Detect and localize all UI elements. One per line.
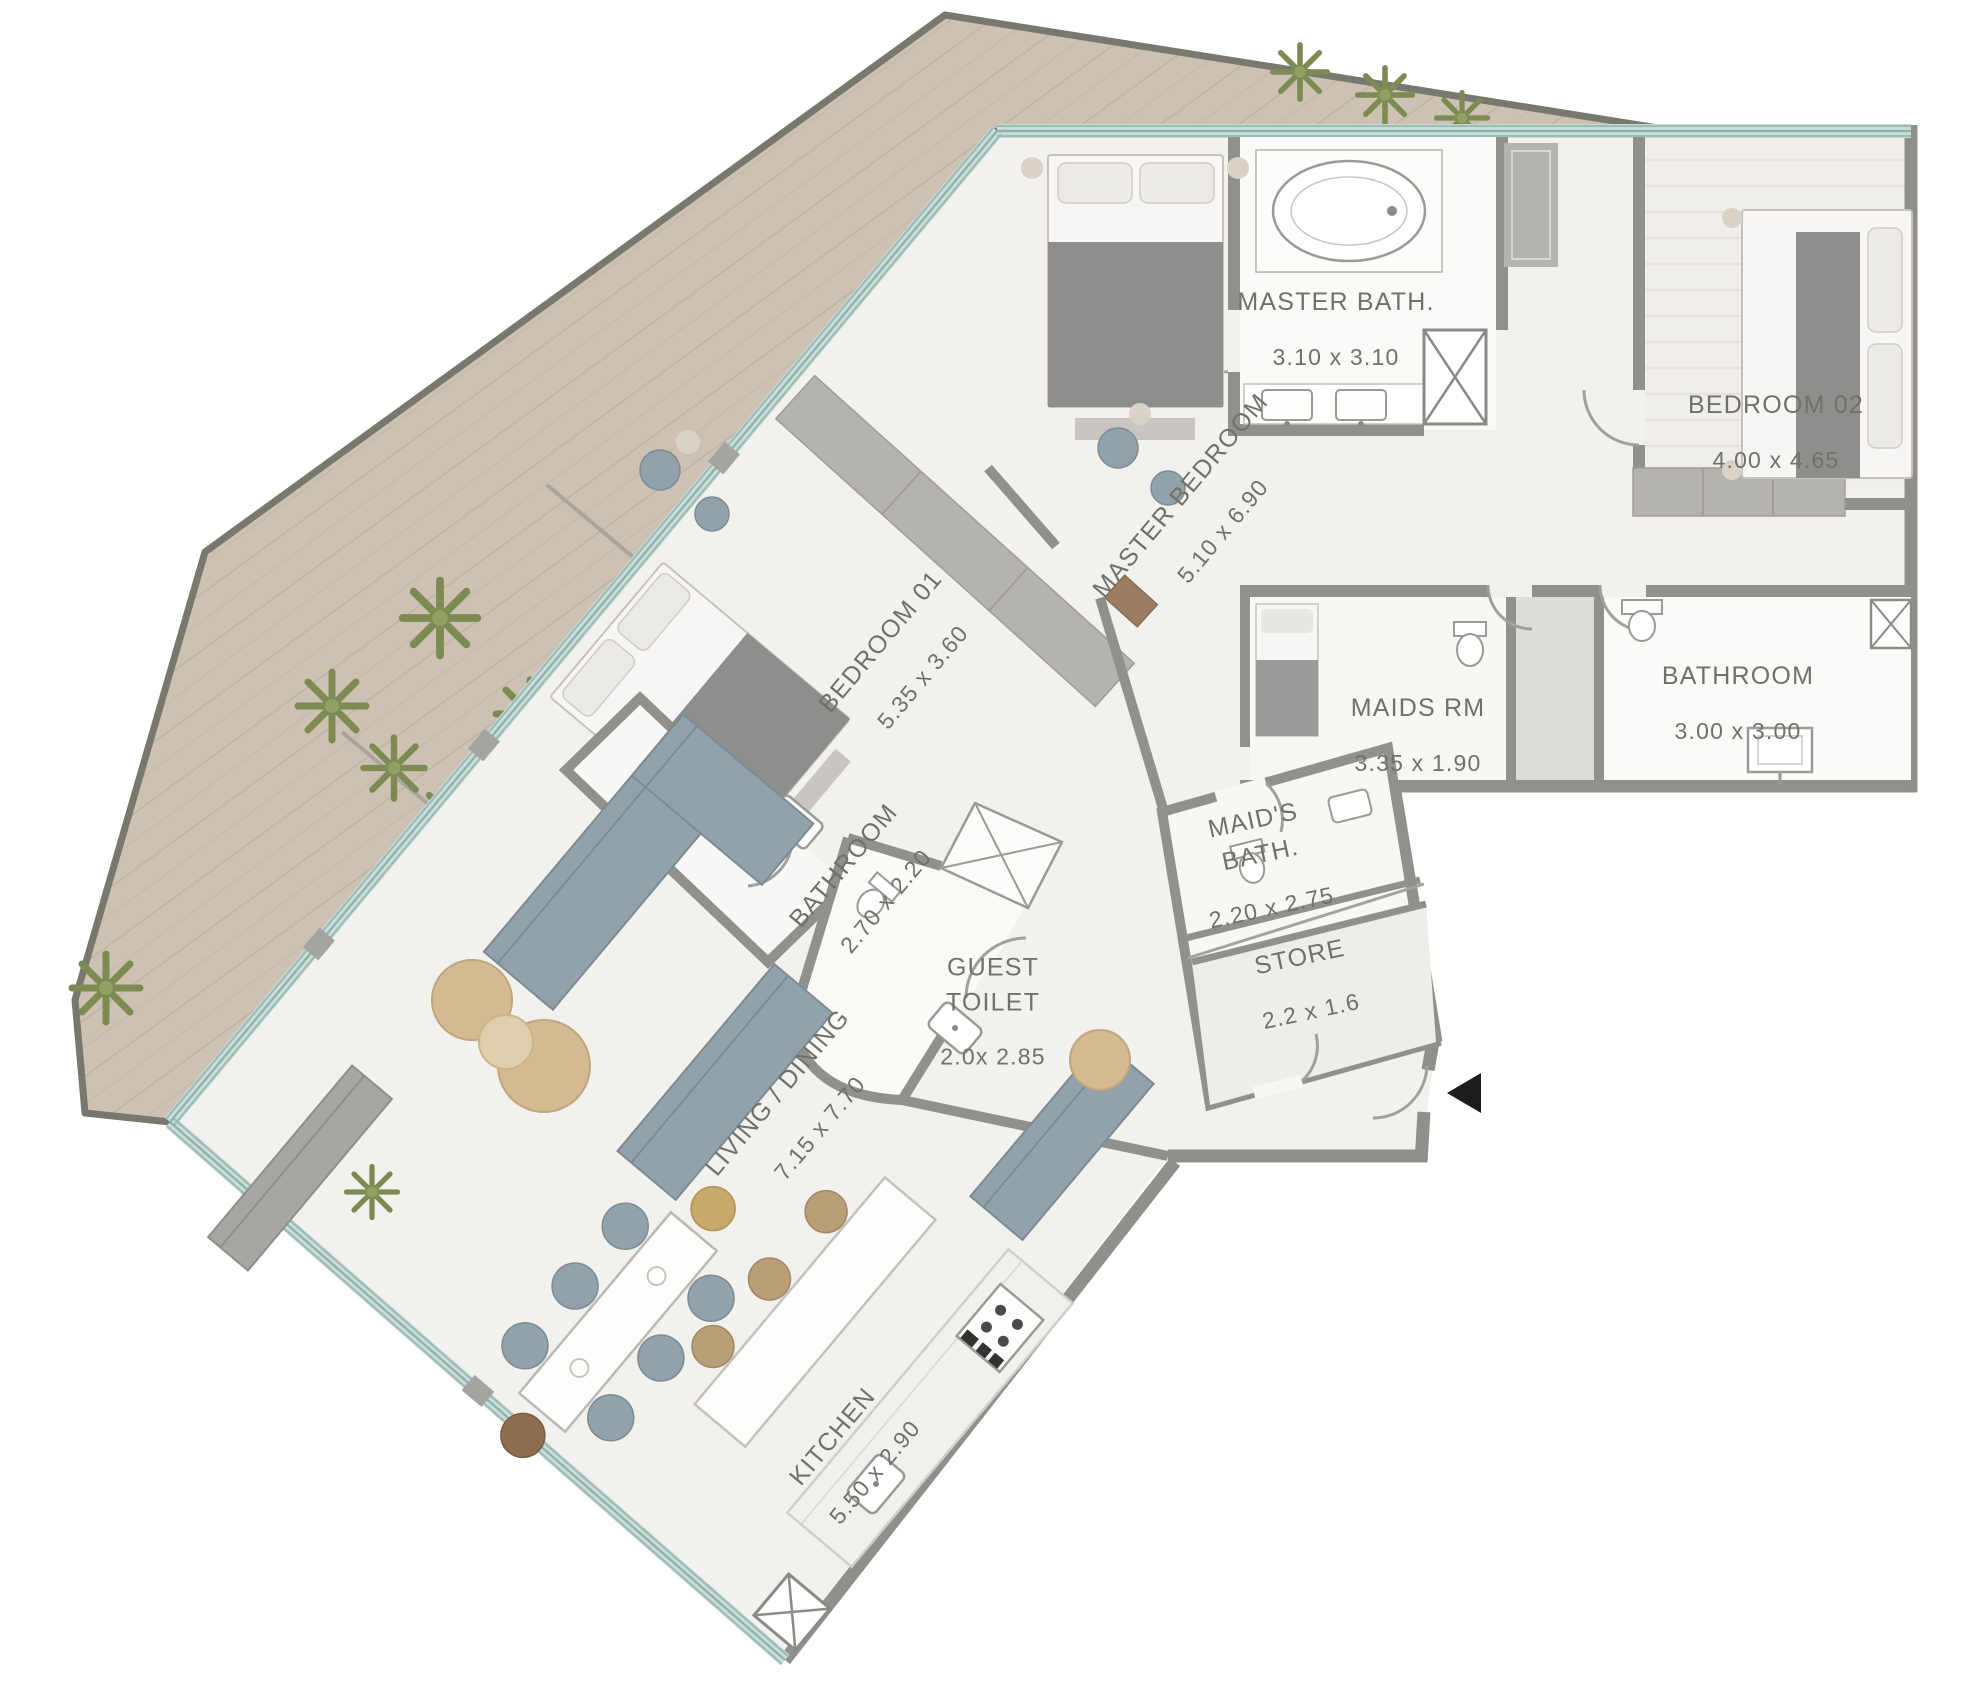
room-label-bedroom-02: BEDROOM 02 4.00 x 4.65	[1688, 366, 1864, 476]
room-name: MAID'S BATH.	[1206, 797, 1302, 876]
room-label-master-bath: MASTER BATH. 3.10 x 3.10	[1237, 263, 1434, 373]
room-dims: 3.35 x 1.90	[1354, 749, 1481, 775]
pillow	[1140, 163, 1214, 203]
room-label-guest-toilet: GUEST TOILET 2.0x 2.85	[937, 929, 1049, 1074]
floor-plan: MASTER BATH. 3.10 x 3.10 BEDROOM 02 4.00…	[0, 0, 1972, 1682]
room-name: BEDROOM 02	[1688, 391, 1864, 419]
pouf	[1070, 1030, 1130, 1090]
bathtub	[1273, 161, 1425, 261]
side-table	[676, 430, 700, 454]
side-table	[1129, 403, 1151, 425]
duct	[1516, 597, 1594, 786]
room-dims: 4.00 x 4.65	[1712, 446, 1839, 472]
entry-arrow-icon	[1447, 1073, 1481, 1113]
armchair	[695, 497, 729, 531]
room-dims: 3.00 x 3.00	[1674, 717, 1801, 743]
room-name: BATHROOM	[1662, 662, 1814, 690]
pouf	[479, 1015, 533, 1069]
sink-icon	[1336, 390, 1386, 420]
interior-floor	[170, 131, 1911, 1660]
blanket	[1048, 242, 1223, 407]
room-name: MASTER BATH.	[1237, 288, 1434, 316]
room-dims: 2.0x 2.85	[940, 1044, 1045, 1070]
armchair	[1098, 428, 1138, 468]
pillow	[1868, 344, 1902, 448]
room-name: STORE	[1252, 934, 1347, 980]
room-label-bathroom-main: BATHROOM 3.00 x 3.00	[1662, 637, 1814, 747]
toilet-icon	[1454, 622, 1486, 666]
pillow	[1058, 163, 1132, 203]
room-name: MAIDS RM	[1351, 694, 1486, 722]
room-label-maids-room: MAIDS RM 3.35 x 1.90	[1351, 669, 1486, 779]
pillow	[1868, 228, 1902, 332]
room-dims: 3.10 x 3.10	[1272, 343, 1399, 369]
room-name: GUEST TOILET	[946, 954, 1040, 1017]
floor-plan-drawing	[0, 0, 1972, 1682]
armchair	[640, 450, 680, 490]
tub-faucet-icon	[1387, 206, 1397, 216]
